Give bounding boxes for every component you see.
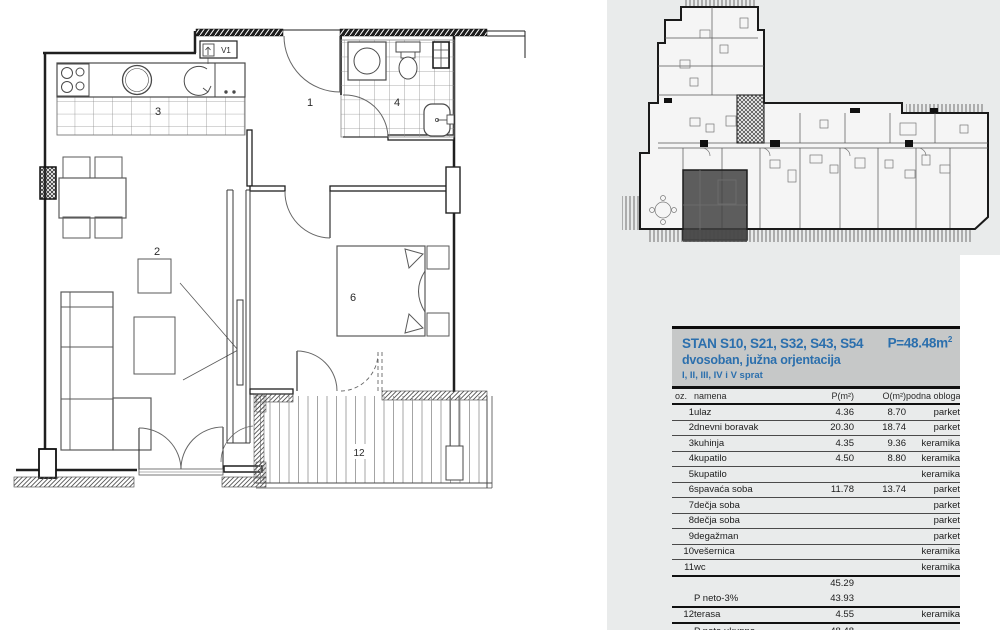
table-header-row: oz. namena P(m²) O(m²) podna obloga [672, 389, 960, 405]
french-door-arc [181, 427, 223, 470]
entrance-door-arc [284, 36, 340, 92]
room-label-hall: 1 [307, 97, 313, 109]
vent-label: V1 [221, 46, 231, 55]
neto3-value: 43.93 [804, 591, 854, 607]
cell-namena: dečja soba [694, 513, 804, 529]
sliding-door-panel [237, 300, 243, 385]
table-row: 10vešernicakeramika [672, 544, 960, 560]
cell-o [854, 513, 906, 529]
coffee-table [138, 259, 171, 293]
cell-oz: 5 [672, 467, 694, 483]
cell-p: 11.78 [804, 482, 854, 498]
cell-o [854, 607, 906, 624]
cell-namena: spavaća soba [694, 482, 804, 498]
apartment-subtitle: dvosoban, južna orjentacija [682, 353, 952, 367]
col-obloga: podna obloga [906, 389, 960, 405]
cell-oz: 8 [672, 513, 694, 529]
table-row: 8dečja sobaparket [672, 513, 960, 529]
col-o: O(m²) [854, 389, 906, 405]
table-row: 6spavaća soba11.7813.74parket [672, 482, 960, 498]
building-overview-plan [607, 0, 1000, 255]
cell-oz: 12 [672, 607, 694, 624]
cell-obloga: parket [906, 498, 960, 514]
kitchen [57, 41, 245, 135]
cell-obloga: keramika [906, 607, 960, 624]
cell-obloga: parket [906, 513, 960, 529]
cell-o: 8.70 [854, 404, 906, 420]
cell-p [804, 560, 854, 576]
cell-obloga: parket [906, 404, 960, 420]
toilet [396, 42, 420, 52]
cell-oz: 1 [672, 404, 694, 420]
table-row: 1ulaz4.368.70parket [672, 404, 960, 420]
cell-namena: ulaz [694, 404, 804, 420]
wall-shaft [40, 167, 56, 199]
cell-o: 18.74 [854, 420, 906, 436]
bed [337, 246, 425, 336]
col-oz: oz. [672, 389, 694, 405]
cell-oz: 4 [672, 451, 694, 467]
cell-p: 4.35 [804, 436, 854, 452]
pillow [405, 314, 423, 333]
cell-oz: 2 [672, 420, 694, 436]
cell-obloga: keramika [906, 560, 960, 576]
cell-p: 4.50 [804, 451, 854, 467]
bathroom [341, 40, 454, 137]
cell-namena: vešernica [694, 544, 804, 560]
sofa [61, 292, 113, 450]
cell-oz: 6 [672, 482, 694, 498]
cell-o [854, 467, 906, 483]
cell-obloga: keramika [906, 436, 960, 452]
col-namena: namena [694, 389, 804, 405]
cell-p: 20.30 [804, 420, 854, 436]
cell-o: 13.74 [854, 482, 906, 498]
rooms-table: oz. namena P(m²) O(m²) podna obloga 1ula… [672, 389, 960, 630]
cell-namena: degažman [694, 529, 804, 545]
subtotal-row: 45.29 [672, 576, 960, 592]
coffee-table [134, 317, 175, 374]
apartment-floor-plan: 1 2 3 4 6 12 V1 [0, 0, 560, 630]
apartment-info-header: STAN S10, S21, S32, S43, S54 P=48.48m2 d… [672, 329, 960, 389]
room-label-bedroom: 6 [350, 292, 356, 304]
cell-obloga: keramika [906, 544, 960, 560]
subtotal-value: 45.29 [804, 576, 854, 592]
cell-obloga: parket [906, 420, 960, 436]
cell-oz: 7 [672, 498, 694, 514]
room-label-bath: 4 [394, 97, 400, 109]
french-door-arc [139, 428, 181, 470]
cell-namena: wc [694, 560, 804, 576]
room-label-terrace: 12 [353, 448, 365, 459]
table-row: 2dnevni boravak20.3018.74parket [672, 420, 960, 436]
cell-p: 4.36 [804, 404, 854, 420]
partition-wall [227, 190, 250, 443]
apartment-info-table: STAN S10, S21, S32, S43, S54 P=48.48m2 d… [672, 326, 960, 630]
room-label-kitchen: 3 [155, 106, 161, 118]
cell-oz: 3 [672, 436, 694, 452]
terrace-door-arc [297, 351, 337, 391]
terrace-unit [446, 446, 463, 480]
cell-namena: dečja soba [694, 498, 804, 514]
cell-p [804, 529, 854, 545]
cell-namena: terasa [694, 607, 804, 624]
col-p: P(m²) [804, 389, 854, 405]
table-row: 5kupatilokeramika [672, 467, 960, 483]
stair-core [737, 95, 764, 143]
cell-oz: 11 [672, 560, 694, 576]
cell-p: 4.55 [804, 607, 854, 624]
cell-obloga: parket [906, 529, 960, 545]
cell-namena: kuhinja [694, 436, 804, 452]
total-row: P neto ukupno48.48 [672, 623, 960, 630]
apartment-title: STAN S10, S21, S32, S43, S54 [682, 336, 863, 351]
terrace [254, 394, 492, 488]
cell-o: 9.36 [854, 436, 906, 452]
cell-o [854, 544, 906, 560]
cell-o [854, 529, 906, 545]
cell-p [804, 544, 854, 560]
table-row: 11wckeramika [672, 560, 960, 576]
cell-obloga: keramika [906, 467, 960, 483]
nightstand [427, 313, 449, 336]
bedroom-door-arc [285, 191, 330, 238]
table-row: 7dečja sobaparket [672, 498, 960, 514]
cell-namena: kupatilo [694, 451, 804, 467]
cell-oz: 10 [672, 544, 694, 560]
cell-p [804, 513, 854, 529]
cell-namena: kupatilo [694, 467, 804, 483]
table-row: 4kupatilo4.508.80keramika [672, 451, 960, 467]
cell-o [854, 560, 906, 576]
apartment-area: P=48.48m2 [888, 335, 952, 351]
table-row: 9degažmanparket [672, 529, 960, 545]
living-room [59, 157, 238, 450]
pillow [405, 249, 423, 268]
sliding-door-pointer [180, 283, 238, 380]
neto3-row: P neto-3%43.93 [672, 591, 960, 607]
room-label-living: 2 [154, 246, 160, 258]
neto3-label: P neto-3% [694, 591, 804, 607]
total-label: P neto ukupno [694, 623, 804, 630]
cell-obloga: parket [906, 482, 960, 498]
cell-oz: 9 [672, 529, 694, 545]
nightstand [427, 246, 449, 269]
cell-p [804, 467, 854, 483]
cell-p [804, 498, 854, 514]
table-row: 3kuhinja4.359.36keramika [672, 436, 960, 452]
dining-table [59, 178, 126, 218]
terasa-row: 12terasa4.55keramika [672, 607, 960, 624]
total-value: 48.48 [804, 623, 854, 630]
apartment-floors: I, II, III, IV i V sprat [682, 370, 952, 381]
area-superscript: 2 [948, 335, 952, 344]
cell-obloga: keramika [906, 451, 960, 467]
cell-o: 8.80 [854, 451, 906, 467]
area-value: P=48.48m [888, 336, 948, 351]
cell-o [854, 498, 906, 514]
cell-namena: dnevni boravak [694, 420, 804, 436]
brochure-page: 1 2 3 4 6 12 V1 [0, 0, 1000, 630]
